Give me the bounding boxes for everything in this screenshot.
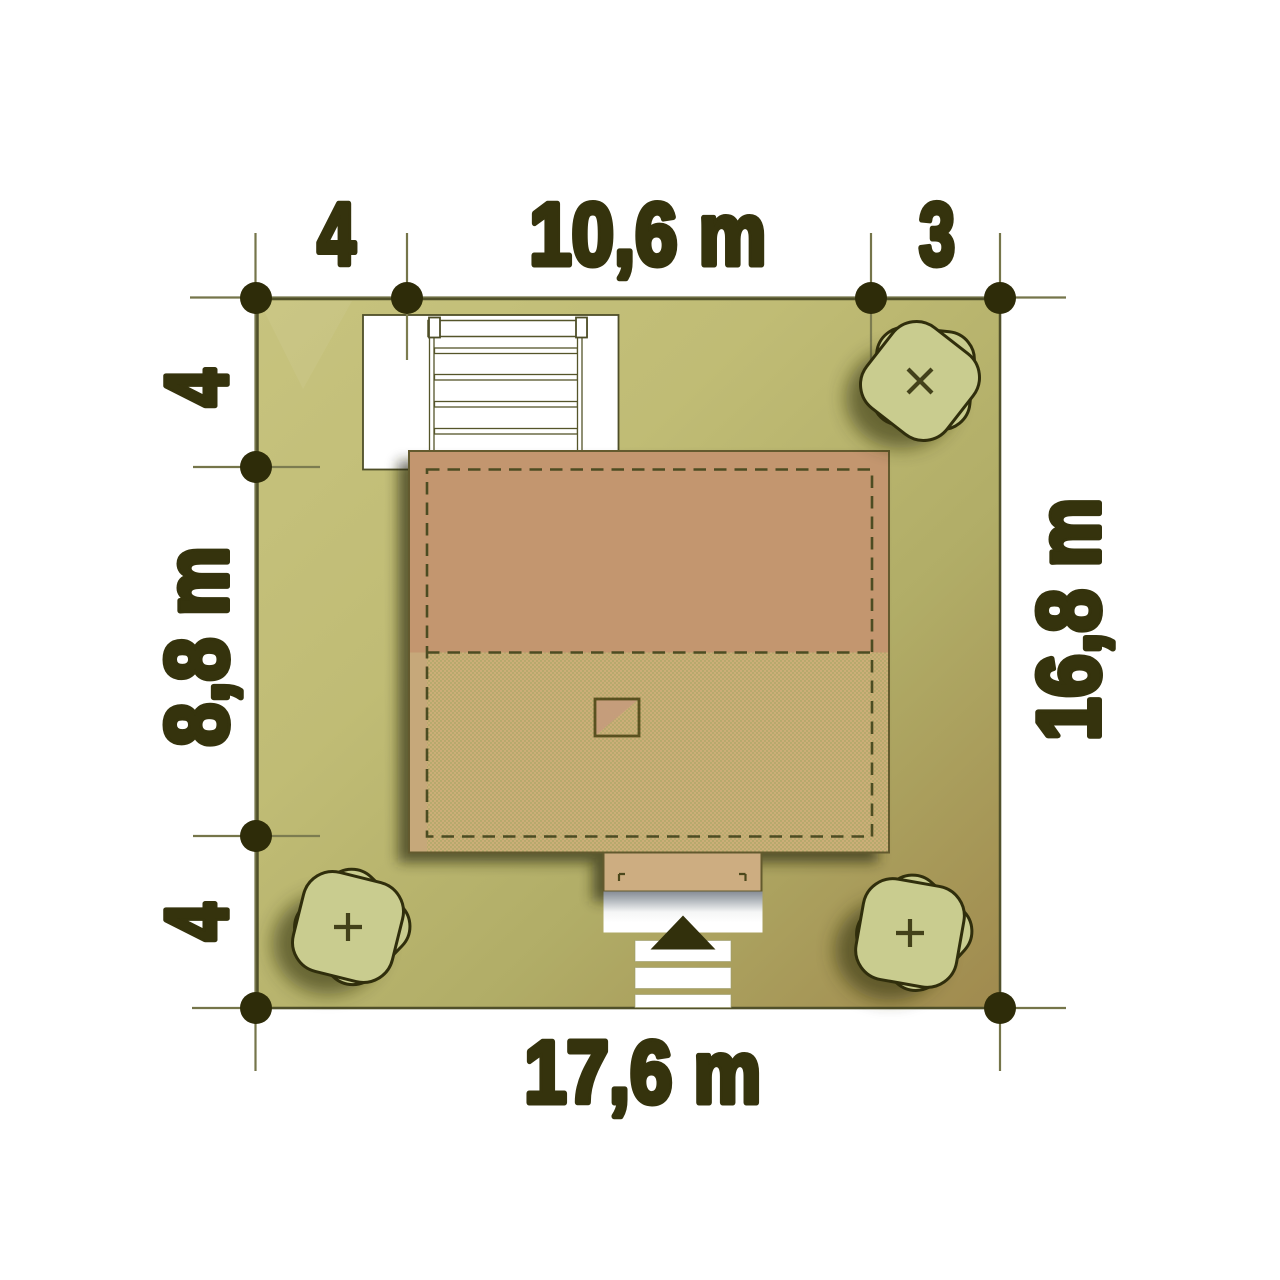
svg-text:17,6 m: 17,6 m (524, 1023, 761, 1122)
svg-text:4: 4 (147, 369, 246, 407)
svg-text:4: 4 (147, 903, 246, 941)
svg-text:10,6 m: 10,6 m (529, 185, 766, 284)
svg-text:3: 3 (919, 185, 955, 284)
svg-text:16,8 m: 16,8 m (1019, 498, 1118, 741)
svg-text:4: 4 (318, 185, 356, 284)
svg-text:8,8 m: 8,8 m (147, 547, 246, 747)
